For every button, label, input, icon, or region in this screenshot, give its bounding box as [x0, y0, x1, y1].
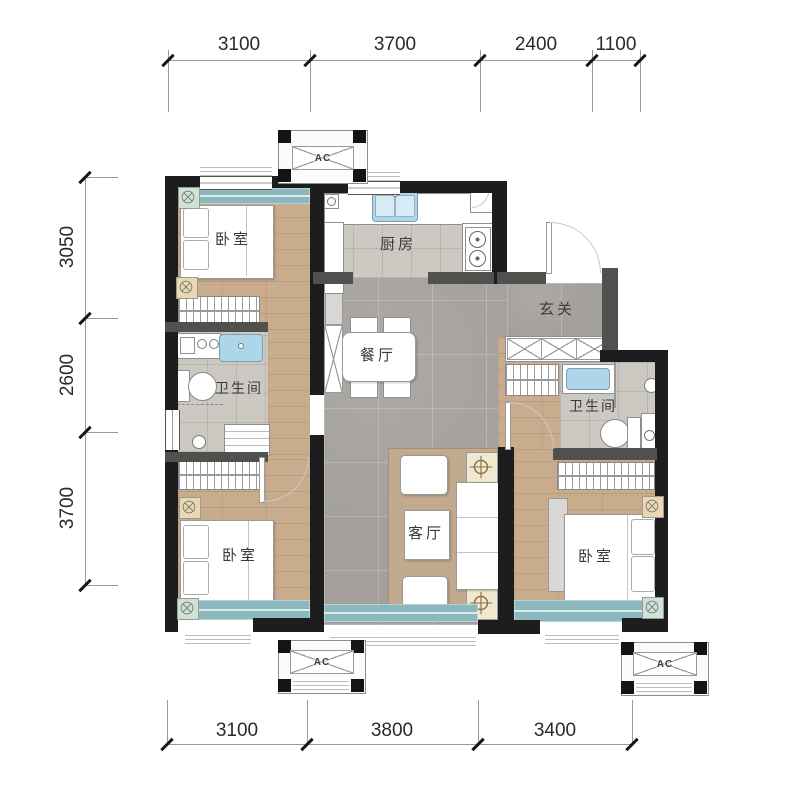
sofa-cushion-line — [457, 552, 499, 553]
downlight-symbol — [179, 497, 201, 519]
ac-corner — [278, 130, 291, 143]
window-band-top-bedroom — [200, 176, 272, 190]
downlight-symbol — [176, 277, 198, 299]
wall-entry-right — [602, 268, 618, 362]
ac-corner — [278, 679, 291, 692]
side-table-top — [466, 452, 498, 484]
ac-corner — [351, 679, 364, 692]
ac-grille — [636, 680, 692, 692]
dim-bottom-value-2: 3400 — [515, 720, 595, 742]
wall-entry-stub — [497, 272, 546, 284]
wall-bottom-a — [253, 618, 324, 632]
dim-ext-line — [85, 432, 118, 433]
label-bath-left: 卫生间 — [204, 378, 274, 398]
window-living — [324, 604, 478, 622]
shoe-cabinet-cell — [507, 338, 542, 360]
dim-line-top — [168, 60, 640, 61]
ac-corner — [353, 130, 366, 143]
window-band-bath-left — [165, 410, 180, 450]
dim-line-left — [85, 177, 86, 585]
pillow — [631, 556, 655, 592]
toilet-bowl-right — [600, 419, 630, 448]
label-bedroom-top-left: 卧室 — [198, 230, 268, 250]
downlight-icon — [643, 598, 661, 616]
dim-ext-line — [85, 318, 118, 319]
wall-bathleft-top — [165, 322, 268, 332]
dim-ext-line — [85, 585, 118, 586]
dim-top-value-1: 3700 — [355, 34, 435, 56]
toilet-tank-right — [627, 417, 641, 449]
ac-label-bottom-left: AC — [290, 650, 354, 674]
dim-left-value-1: 2600 — [57, 335, 79, 415]
bath-right-sink — [566, 368, 610, 390]
washer-knob — [209, 339, 219, 349]
floor-corridor-left — [268, 330, 310, 455]
dining-chair — [350, 380, 378, 398]
sofa — [456, 482, 502, 590]
downlight-symbol — [642, 597, 664, 619]
wall-kitchen-bottom-a — [313, 272, 353, 284]
dim-top-value-2: 2400 — [496, 34, 576, 56]
washer-knob — [197, 339, 207, 349]
corridor-closet — [505, 364, 559, 396]
dim-top-value-0: 3100 — [199, 34, 279, 56]
pillow — [183, 561, 209, 595]
ac-corner — [278, 169, 291, 182]
dim-ext-line — [307, 700, 308, 745]
dim-left-value-2: 3700 — [57, 468, 79, 548]
downlight-symbol — [178, 187, 200, 209]
label-bath-right: 卫生间 — [558, 396, 628, 416]
dim-bottom-value-1: 3800 — [352, 720, 432, 742]
wall-bottom-b — [478, 620, 540, 634]
meter-dial — [327, 197, 336, 206]
dim-top-value-3: 1100 — [576, 34, 656, 56]
ceiling-lamp-icon — [467, 453, 495, 481]
wall-kitchen-entry — [492, 181, 507, 284]
downlight-icon — [180, 498, 198, 516]
dim-bottom-value-0: 3100 — [197, 720, 277, 742]
wall-bedroom-kitchen — [310, 176, 324, 395]
ac-grille — [293, 678, 349, 690]
washer-knob — [644, 430, 655, 441]
shoe-cabinet-cell — [541, 338, 577, 360]
wall-hall-left-lower — [310, 435, 324, 632]
entry-door-arc — [550, 222, 601, 273]
sofa-cushion-line — [457, 517, 499, 518]
wall-bathright-bedroom-b — [553, 448, 657, 460]
window-sill-top-bedroom — [200, 164, 272, 176]
downlight-symbol — [642, 496, 664, 518]
shower-drain-left — [192, 435, 206, 449]
dim-ext-line — [85, 177, 118, 178]
label-kitchen: 厨房 — [363, 235, 433, 255]
downlight-icon — [177, 278, 195, 296]
shower-screen-line — [177, 404, 223, 405]
label-bedroom-bottom-right: 卧室 — [561, 547, 631, 567]
label-entry: 玄关 — [522, 300, 592, 320]
wardrobe-bottom-right — [557, 462, 655, 490]
window-sill-bedroom-bottom-left — [185, 632, 251, 646]
armchair-top — [400, 455, 448, 495]
ac-label-top: AC — [292, 146, 354, 170]
ac-corner — [694, 681, 707, 694]
label-dining: 餐厅 — [343, 346, 413, 366]
downlight-icon — [179, 188, 197, 206]
downlight-icon — [178, 599, 196, 617]
floor-plan-canvas: AC AC AC 卧室 厨房 玄关 餐厅 卫生间 卫生间 客厅 卧室 卧室 31… — [0, 0, 800, 800]
dim-ext-line — [632, 700, 633, 745]
sink-basin — [395, 195, 415, 217]
ac-corner — [353, 169, 366, 182]
dim-line-bottom — [167, 744, 632, 745]
label-living: 客厅 — [391, 524, 461, 544]
ac-corner — [621, 681, 634, 694]
wall-left-exterior — [165, 176, 178, 632]
washer-door — [180, 337, 195, 354]
wardrobe-bottom-left — [178, 460, 260, 490]
faucet-dot — [238, 343, 244, 349]
label-bedroom-bottom-left: 卧室 — [205, 546, 275, 566]
stove-burner — [469, 250, 486, 267]
ac-label-bottom-right: AC — [633, 652, 697, 676]
wall-right-exterior — [655, 350, 668, 632]
dining-chair — [383, 380, 411, 398]
wall-living-bedroom-right — [498, 447, 514, 632]
dining-cabinet — [324, 325, 343, 393]
downlight-icon — [643, 497, 661, 515]
downlight-symbol — [177, 598, 199, 620]
window-sill-bedroom-bottom-right — [545, 632, 619, 646]
dim-ext-line — [167, 700, 168, 745]
dim-left-value-0: 3050 — [57, 207, 79, 287]
wall-bottom-c — [622, 618, 668, 632]
stove-burner — [469, 231, 486, 248]
dim-ext-line — [478, 700, 479, 745]
wall-kitchen-bottom-b — [428, 272, 494, 284]
sink-basin — [375, 195, 395, 217]
wall-bathleft-bottom — [165, 452, 268, 462]
pillow — [631, 519, 655, 555]
